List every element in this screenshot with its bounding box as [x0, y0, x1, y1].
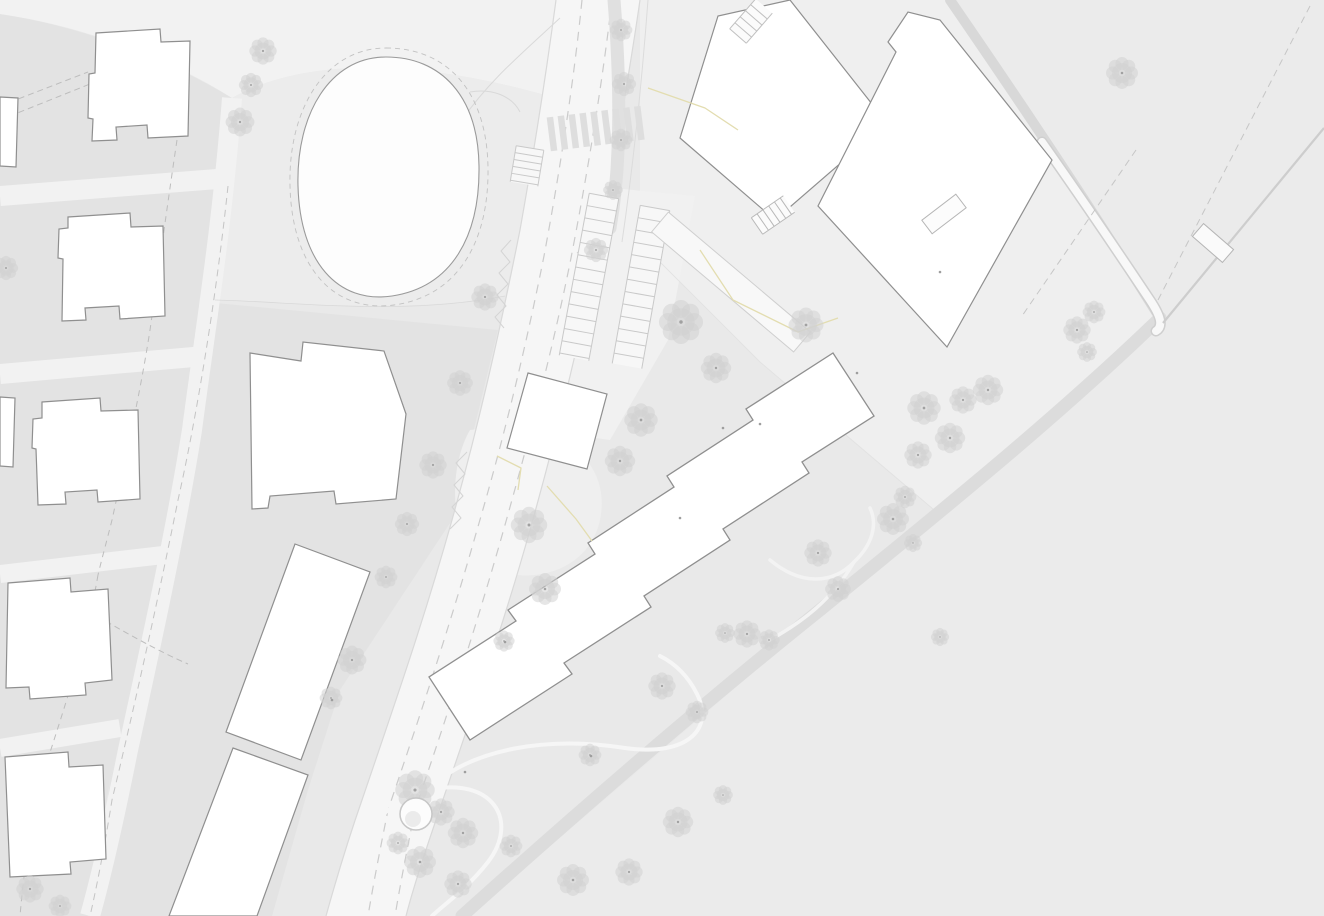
- tree-icon: [713, 785, 733, 805]
- tree-icon: [249, 37, 276, 64]
- site-dot: [464, 771, 467, 774]
- tree-icon: [701, 353, 731, 383]
- site-dot: [590, 755, 593, 758]
- tree-icon: [603, 180, 623, 200]
- tree-icon: [375, 566, 398, 589]
- tree-icon: [579, 744, 602, 767]
- tree-icon: [511, 507, 547, 543]
- tree-icon: [320, 687, 343, 710]
- tree-icon: [973, 375, 1003, 405]
- building-w-3: [32, 398, 140, 505]
- tree-icon: [500, 835, 523, 858]
- tree-icon: [1077, 342, 1097, 362]
- tree-icon: [395, 512, 419, 536]
- building-sw-4: [6, 578, 112, 699]
- tree-icon: [789, 308, 824, 343]
- tree-icon: [444, 870, 471, 897]
- tree-icon: [447, 370, 473, 396]
- tree-icon: [557, 864, 589, 896]
- tree-icon: [605, 446, 635, 476]
- tree-icon: [935, 423, 965, 453]
- site-dot: [331, 699, 334, 702]
- tree-icon: [686, 701, 709, 724]
- sports-field: [298, 57, 479, 297]
- tree-icon: [529, 573, 561, 605]
- tree-icon: [584, 238, 608, 262]
- site-dot: [504, 641, 507, 644]
- site-dot: [679, 517, 682, 520]
- tree-icon: [648, 672, 675, 699]
- tree-icon: [949, 386, 976, 413]
- tree-icon: [715, 623, 735, 643]
- tree-icon: [904, 441, 931, 468]
- tree-icon: [612, 72, 636, 96]
- tree-icon: [894, 486, 917, 509]
- tree-icon: [404, 846, 436, 878]
- platform-steps: [510, 146, 544, 187]
- tree-icon: [904, 534, 922, 552]
- site-dot: [939, 271, 942, 274]
- tree-icon: [471, 283, 498, 310]
- tree-icon: [659, 300, 703, 344]
- tree-icon: [419, 451, 446, 478]
- building-mid-west: [250, 342, 406, 509]
- building-nw-1: [88, 29, 190, 141]
- tree-icon: [733, 620, 760, 647]
- tree-icon: [610, 19, 633, 42]
- tree-icon: [493, 630, 514, 651]
- tree-icon: [16, 875, 43, 902]
- tree-icon: [387, 832, 410, 855]
- site-dot: [722, 427, 725, 430]
- tree-icon: [615, 858, 642, 885]
- tree-icon: [907, 391, 940, 424]
- tree-icon: [610, 129, 633, 152]
- tree-icon: [931, 628, 949, 646]
- tree-icon: [239, 73, 263, 97]
- edge-sliver-2: [0, 397, 15, 467]
- tree-icon: [1083, 301, 1106, 324]
- pavilion-inner: [405, 811, 421, 827]
- tree-icon: [338, 646, 367, 675]
- building-sw-5: [5, 752, 106, 877]
- site-plan-map[interactable]: [0, 0, 1324, 916]
- tree-icon: [49, 895, 72, 916]
- site-dot: [856, 372, 859, 375]
- tree-icon: [758, 629, 779, 650]
- tree-icon: [624, 403, 657, 436]
- building-w-2: [58, 213, 165, 321]
- edge-sliver-1: [0, 97, 18, 167]
- site-dot: [759, 423, 762, 426]
- tree-icon: [663, 807, 693, 837]
- site-plan-canvas: [0, 0, 1324, 916]
- tree-icon: [804, 539, 831, 566]
- tree-icon: [1106, 57, 1138, 89]
- tree-icon: [825, 576, 851, 602]
- tree-icon: [226, 108, 255, 137]
- tree-icon: [448, 818, 478, 848]
